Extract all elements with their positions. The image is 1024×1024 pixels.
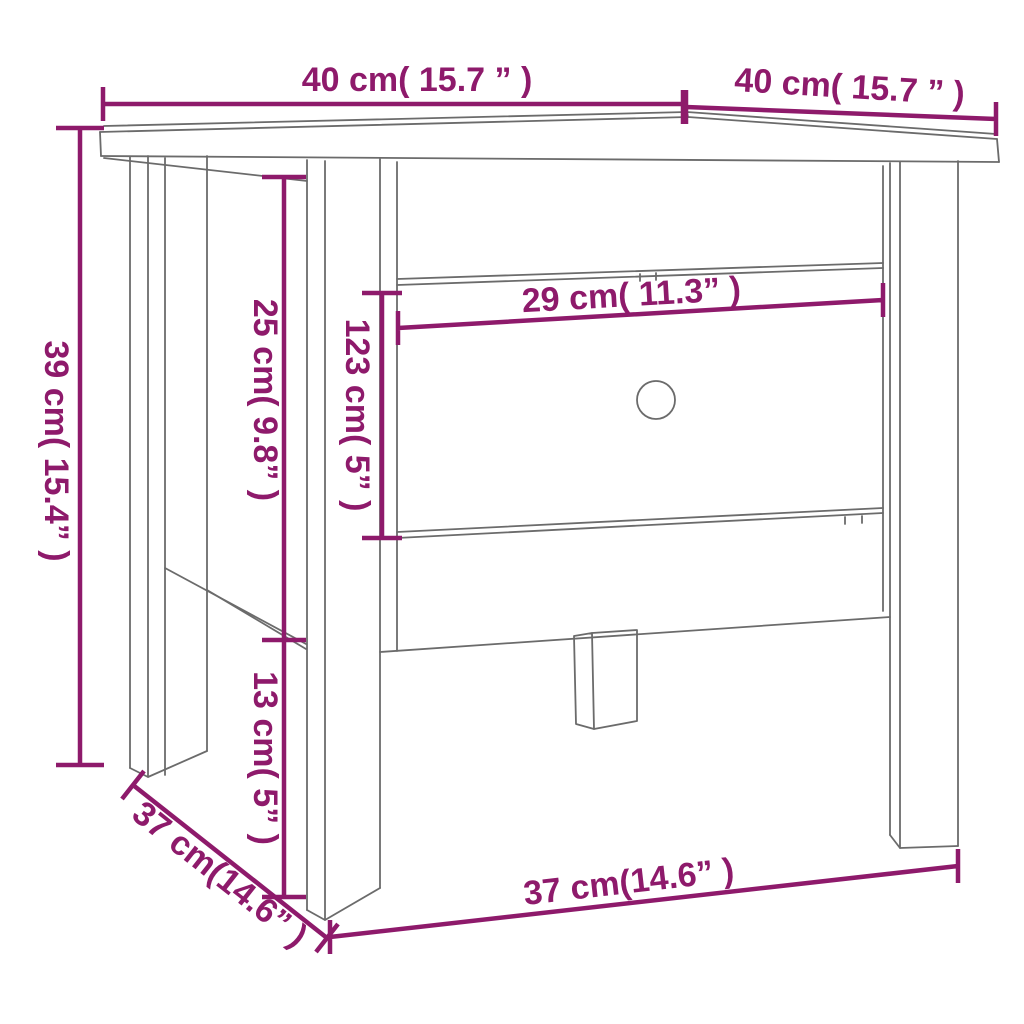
front-right-leg <box>883 161 958 848</box>
dimension-upper-side: 25 cm( 9.8” ) <box>246 177 306 640</box>
tabletop-bottom-edge <box>101 156 999 162</box>
center-foot-front-face <box>574 633 594 729</box>
dimension-label-top-depth: 40 cm( 15.7 ” ) <box>733 61 965 113</box>
drawer-lower-edge-a <box>397 508 883 532</box>
dimension-top-depth: 40 cm( 15.7 ” ) <box>686 61 996 136</box>
front-panel <box>380 263 890 652</box>
dimension-base-width: 37 cm(14.6” ) <box>330 849 958 954</box>
front-left-foot-bottom <box>307 888 380 920</box>
drawer-knob-hole <box>637 381 675 419</box>
drawer-lower-edge-b <box>397 513 883 538</box>
side-table-dimension-svg: 40 cm( 15.7 ” ) 40 cm( 15.7 ” ) 39 cm( 1… <box>0 0 1024 1024</box>
dimension-annotations: 40 cm( 15.7 ” ) 40 cm( 15.7 ” ) 39 cm( 1… <box>37 61 996 955</box>
dimension-label-drawer-height: 123 cm( 5” ) <box>338 319 376 512</box>
center-foot-side-face <box>592 630 637 729</box>
dimension-drawer-height: 123 cm( 5” ) <box>338 293 402 538</box>
dimension-drawer-width: 29 cm( 11.3” ) <box>398 270 883 345</box>
tabletop-left-cap <box>100 132 101 156</box>
side-table-drawing <box>100 112 999 920</box>
tabletop <box>100 112 999 162</box>
tabletop-right-cap <box>997 139 999 162</box>
dimension-label-top-width: 40 cm( 15.7 ” ) <box>302 61 533 99</box>
tabletop-front-edge <box>100 117 997 139</box>
dimension-label-upper-side: 25 cm( 9.8” ) <box>246 299 284 501</box>
dimension-label-leg-clearance: 13 cm( 5” ) <box>246 671 284 845</box>
product-dimension-diagram: 40 cm( 15.7 ” ) 40 cm( 15.7 ” ) 39 cm( 1… <box>0 0 1024 1024</box>
bottom-apron-lower-edge <box>380 617 890 652</box>
dimension-leg-clearance: 13 cm( 5” ) <box>246 640 306 897</box>
dimension-label-drawer-width: 29 cm( 11.3” ) <box>521 270 742 321</box>
center-foot <box>574 630 637 729</box>
dimension-label-height: 39 cm( 15.4” ) <box>37 340 75 561</box>
dimension-height: 39 cm( 15.4” ) <box>37 128 104 765</box>
dimension-base-depth: 37 cm(14.6” ) <box>122 771 338 955</box>
